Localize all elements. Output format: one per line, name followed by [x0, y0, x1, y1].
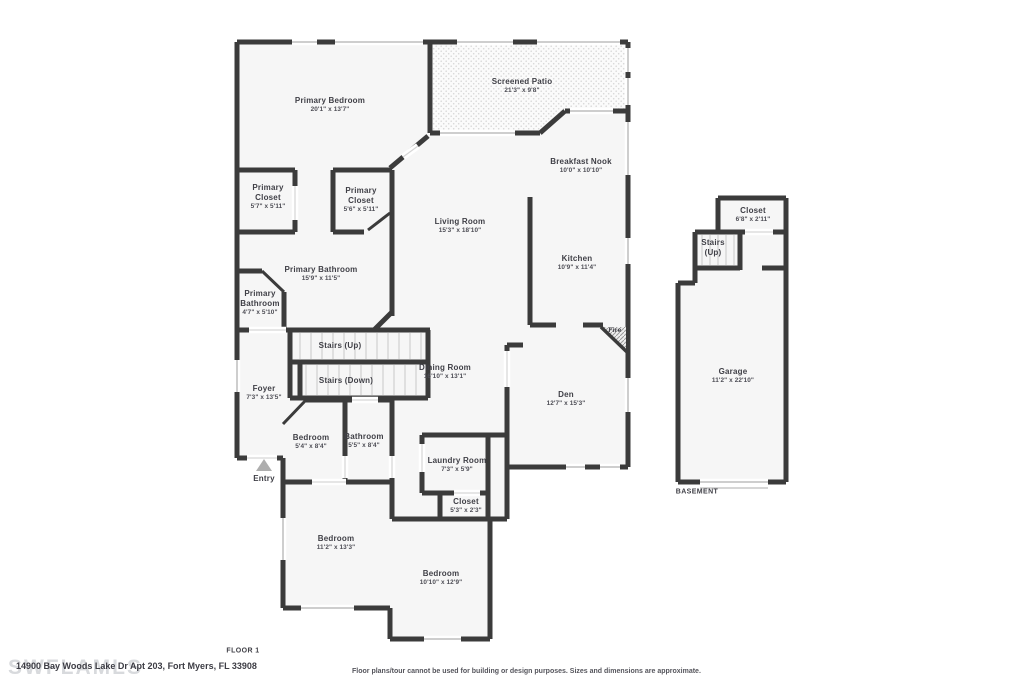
floor1-caption: FLOOR 1 [226, 648, 259, 655]
disclaimer-text: Floor plans/tour cannot be used for buil… [352, 668, 701, 675]
basement-caption: BASEMENT [676, 489, 718, 496]
address-text: 14900 Bay Woods Lake Dr Apt 203, Fort My… [16, 661, 257, 671]
floorplan-drawing [0, 0, 1024, 682]
floorplan-page: { "floor1": { "caption": "FLOOR 1", "roo… [0, 0, 1024, 682]
